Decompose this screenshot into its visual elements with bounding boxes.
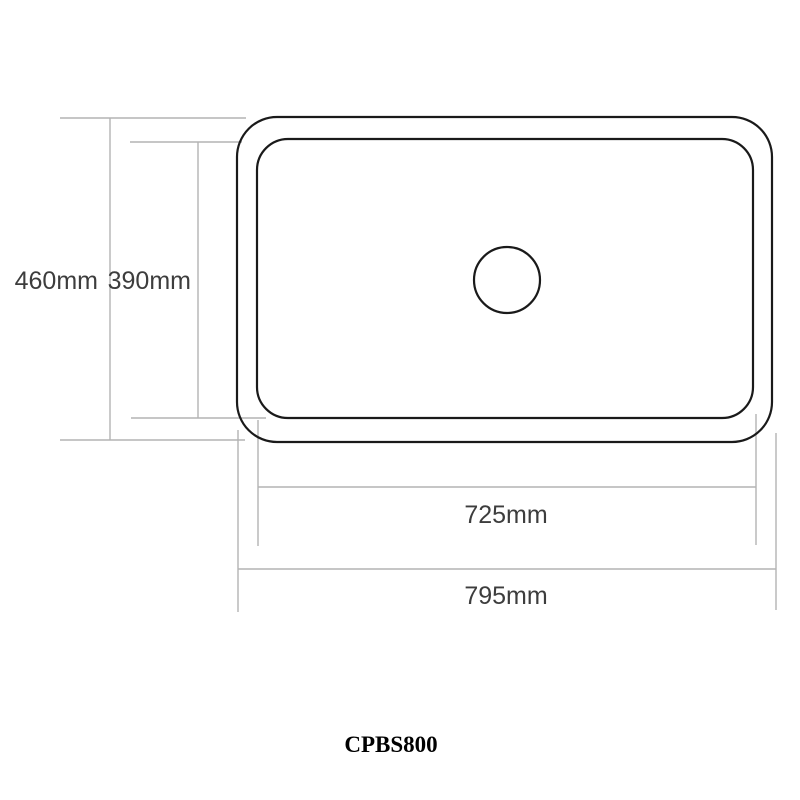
sink-outer-rim-outline <box>237 117 772 442</box>
dimension-bowl-height: 390mm <box>108 142 266 418</box>
dimension-label-725: 725mm <box>464 501 547 529</box>
sink-dimension-drawing: 460mm 390mm 725mm 795mm <box>0 0 800 800</box>
dimension-label-795: 795mm <box>464 582 547 610</box>
dimension-label-460: 460mm <box>15 267 98 295</box>
dimension-label-390: 390mm <box>108 267 191 295</box>
sink-inner-bowl-outline <box>257 139 753 418</box>
product-code-label: CPBS800 <box>344 732 437 757</box>
sink-outline-group <box>237 117 772 442</box>
dimension-bowl-width: 725mm <box>258 414 756 546</box>
drain-hole-circle <box>474 247 540 313</box>
drawing-svg: 460mm 390mm 725mm 795mm <box>0 0 800 800</box>
